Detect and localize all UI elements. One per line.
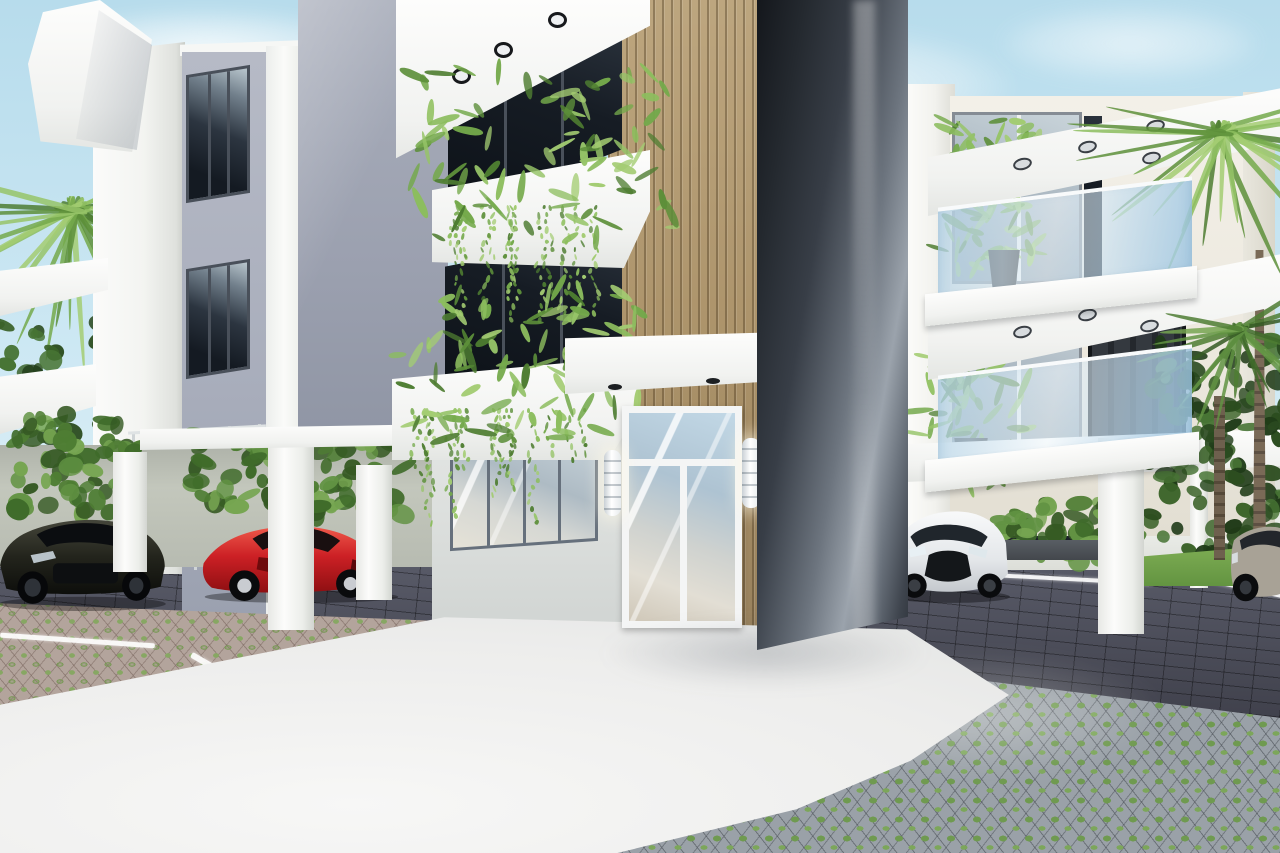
carport-column [268, 430, 314, 630]
scene-root [0, 0, 1280, 853]
door-center-mullion [680, 466, 687, 621]
recessed-light [1141, 150, 1162, 166]
recessed-light [1139, 318, 1160, 334]
recessed-downlight [548, 12, 567, 28]
recessed-light [1145, 118, 1166, 134]
recessed-downlight [452, 68, 471, 84]
entrance-door [622, 406, 742, 628]
silver-car [1228, 510, 1280, 610]
dark-sedan [0, 488, 176, 612]
carport-column [356, 465, 392, 600]
carport-column [113, 452, 147, 572]
canopy-downlight [706, 378, 720, 384]
recessed-light [1012, 324, 1033, 340]
palm-trunk [1214, 396, 1225, 560]
canopy-downlight [608, 384, 622, 390]
left-window-upper [186, 65, 250, 203]
recessed-downlight [494, 42, 513, 58]
cloud [1000, 6, 1260, 81]
recessed-light [1077, 139, 1098, 155]
left-window-lower [186, 259, 250, 379]
door-transom-bar [629, 459, 735, 466]
dark-feature-tower [757, 0, 908, 652]
wall-sconce-left [604, 450, 621, 516]
recessed-light [1012, 156, 1033, 172]
